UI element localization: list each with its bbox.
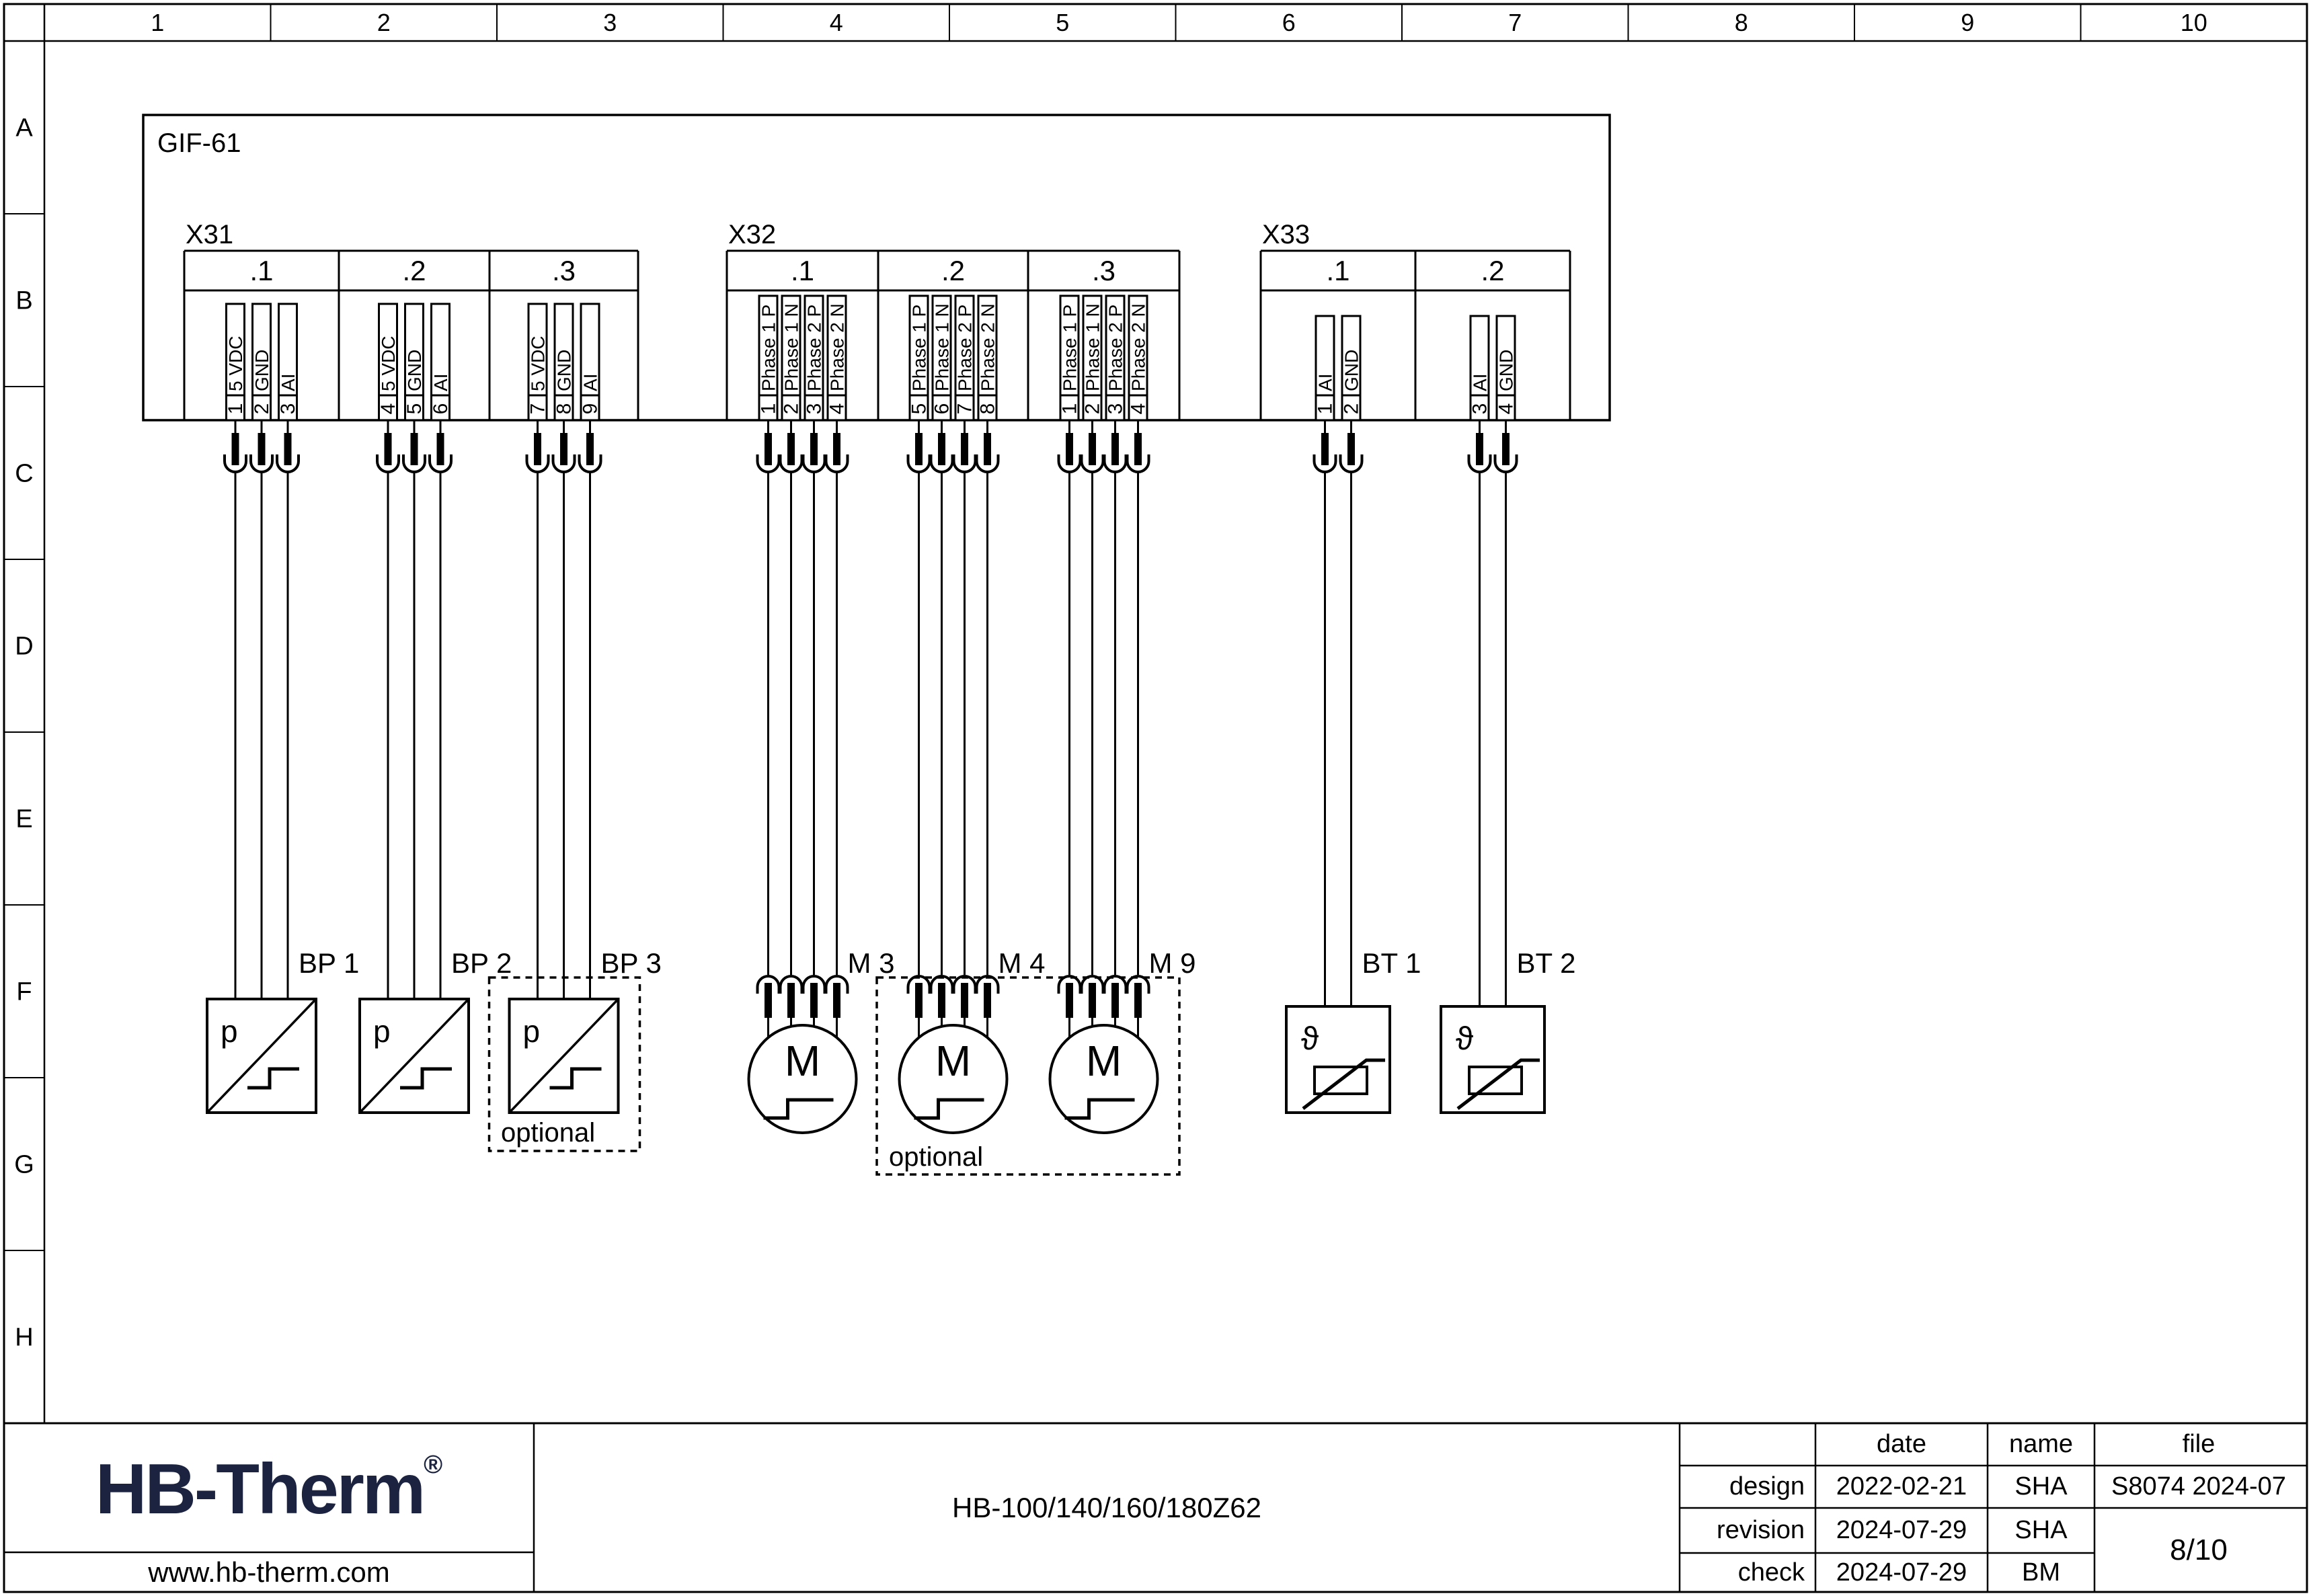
- plug-pin-icon: [915, 433, 923, 465]
- plug-pin-icon: [1134, 983, 1142, 1018]
- plug-pin-icon: [810, 433, 818, 465]
- pin-number: 5: [403, 403, 426, 415]
- plug-pin-icon: [810, 983, 818, 1018]
- plug-pin-icon: [1111, 983, 1119, 1018]
- plug-pin-icon: [385, 433, 392, 465]
- plug-pin-icon: [765, 983, 772, 1018]
- pin-label: Phase 2 P: [1105, 305, 1126, 391]
- ruler-row-label: G: [14, 1151, 34, 1179]
- motor-symbol: M: [1086, 1037, 1122, 1085]
- plug-pin-icon: [1111, 433, 1119, 465]
- pin-label: AI: [1470, 374, 1491, 391]
- registered-trademark-icon: ®: [424, 1451, 442, 1480]
- section-label: .3: [552, 255, 576, 286]
- pin-number: 4: [1128, 403, 1150, 415]
- titleblock-header-file: file: [2094, 1423, 2303, 1466]
- pin-label: AI: [278, 374, 299, 391]
- device-label: BP 3: [601, 947, 662, 979]
- pin-number: 1: [1059, 403, 1081, 415]
- pin-number: 3: [277, 403, 299, 415]
- pin-label: Phase 2 N: [978, 303, 998, 391]
- plug-pin-icon: [258, 433, 266, 465]
- device-label: M 9: [1149, 947, 1196, 979]
- design-name: SHA: [1988, 1466, 2094, 1508]
- website-link[interactable]: www.hb-therm.com: [4, 1552, 534, 1592]
- section-label: .1: [1326, 255, 1349, 286]
- pin-number: 4: [377, 403, 399, 415]
- pin-number: 7: [954, 403, 976, 415]
- design-date: 2022-02-21: [1815, 1466, 1988, 1508]
- section-label: .2: [941, 255, 965, 286]
- ruler-column-label: 8: [1735, 9, 1748, 36]
- ruler-row-label: D: [15, 633, 33, 661]
- pin-label: Phase 1 N: [932, 303, 953, 391]
- pin-label: AI: [580, 374, 601, 391]
- check-date: 2024-07-29: [1815, 1553, 1988, 1592]
- device-label: BP 1: [299, 947, 359, 979]
- ruler-row-label: F: [16, 978, 32, 1006]
- check-name: BM: [1988, 1553, 2094, 1592]
- schematic-drawing: 12345678910ABCDEFGHGIF-61X31.15 VDC1GND2…: [0, 0, 2311, 1596]
- design-label: design: [1684, 1466, 1815, 1508]
- device-label: M 4: [998, 947, 1046, 979]
- plug-pin-icon: [560, 433, 567, 465]
- pin-number: 8: [977, 403, 999, 415]
- ruler-column-label: 10: [2181, 9, 2207, 36]
- pin-label: 5 VDC: [378, 336, 399, 391]
- plug-pin-icon: [984, 983, 991, 1018]
- plug-pin-icon: [1089, 433, 1096, 465]
- plug-pin-icon: [833, 983, 840, 1018]
- plug-pin-icon: [586, 433, 594, 465]
- plug-pin-icon: [915, 983, 923, 1018]
- ruler-row-label: H: [15, 1324, 33, 1352]
- pin-label: Phase 1 P: [1060, 305, 1081, 391]
- ruler-row-label: B: [15, 287, 32, 315]
- ruler-column-label: 1: [151, 9, 164, 36]
- pin-label: Phase 1 N: [781, 303, 802, 391]
- pin-label: GND: [554, 350, 575, 391]
- plug-pin-icon: [1347, 433, 1355, 465]
- plug-pin-icon: [1134, 433, 1142, 465]
- company-logo: HB-Therm®: [4, 1426, 534, 1552]
- revision-label: revision: [1684, 1508, 1815, 1553]
- pin-number: 4: [826, 403, 849, 415]
- pin-number: 2: [251, 403, 273, 415]
- revision-name: SHA: [1988, 1508, 2094, 1553]
- pin-label: 5 VDC: [528, 336, 549, 391]
- ruler-column-label: 7: [1508, 9, 1522, 36]
- pin-number: 9: [580, 403, 602, 415]
- pin-label: Phase 2 N: [827, 303, 848, 391]
- plug-pin-icon: [1089, 983, 1096, 1018]
- ruler-column-label: 5: [1056, 9, 1069, 36]
- pin-label: AI: [430, 374, 451, 391]
- plug-pin-icon: [1321, 433, 1329, 465]
- section-label: .2: [402, 255, 426, 286]
- pin-number: 8: [553, 403, 576, 415]
- ruler-column-label: 9: [1961, 9, 1974, 36]
- connector-id: X31: [186, 220, 233, 249]
- pin-label: Phase 1 P: [758, 305, 779, 391]
- plug-pin-icon: [411, 433, 418, 465]
- section-label: .1: [249, 255, 273, 286]
- plug-pin-icon: [437, 433, 444, 465]
- section-label: .2: [1481, 255, 1504, 286]
- connector-id: X33: [1262, 220, 1310, 249]
- page-border: [4, 4, 2307, 1592]
- pin-label: Phase 2 P: [804, 305, 825, 391]
- plug-pin-icon: [765, 433, 772, 465]
- ruler-row-label: C: [15, 460, 33, 488]
- optional-label: optional: [501, 1118, 595, 1148]
- plug-pin-icon: [787, 433, 795, 465]
- pin-number: 3: [804, 403, 826, 415]
- pressure-symbol: p: [221, 1014, 238, 1049]
- pin-label: Phase 1 P: [909, 305, 930, 391]
- temperature-symbol: ϑ: [1301, 1021, 1319, 1057]
- pin-number: 2: [1341, 403, 1363, 415]
- pin-label: GND: [1341, 350, 1362, 391]
- pin-label: GND: [404, 350, 425, 391]
- temperature-symbol: ϑ: [1456, 1021, 1473, 1057]
- plug-pin-icon: [938, 983, 945, 1018]
- device-label: BT 1: [1362, 947, 1421, 979]
- check-label: check: [1684, 1553, 1815, 1592]
- section-label: .3: [1092, 255, 1115, 286]
- ruler-column-label: 2: [377, 9, 391, 36]
- ruler-row-label: A: [15, 114, 33, 143]
- pin-number: 1: [1315, 403, 1337, 415]
- schematic-sheet: 12345678910ABCDEFGHGIF-61X31.15 VDC1GND2…: [0, 0, 2311, 1596]
- pin-label: GND: [1496, 350, 1517, 391]
- plug-pin-icon: [1476, 433, 1483, 465]
- pin-number: 2: [781, 403, 803, 415]
- pin-number: 1: [225, 403, 247, 415]
- device-label: M 3: [848, 947, 895, 979]
- pin-label: Phase 2 P: [955, 305, 976, 391]
- optional-label: optional: [889, 1142, 983, 1172]
- pin-number: 1: [758, 403, 780, 415]
- pin-label: GND: [251, 350, 272, 391]
- pressure-symbol: p: [523, 1014, 541, 1049]
- pin-number: 7: [527, 403, 549, 415]
- ruler-column-label: 4: [830, 9, 843, 36]
- pin-number: 3: [1469, 403, 1491, 415]
- pin-number: 2: [1082, 403, 1104, 415]
- pressure-symbol: p: [373, 1014, 391, 1049]
- titleblock-header-name: name: [1988, 1423, 2094, 1466]
- section-label: .1: [791, 255, 814, 286]
- titleblock-header-date: date: [1815, 1423, 1988, 1466]
- motor-symbol: M: [785, 1037, 820, 1085]
- pin-number: 4: [1495, 403, 1518, 415]
- pin-number: 3: [1105, 403, 1127, 415]
- page-number: 8/10: [2094, 1508, 2303, 1592]
- connector-id: X32: [728, 220, 776, 249]
- plug-pin-icon: [232, 433, 239, 465]
- pin-number: 5: [908, 403, 931, 415]
- plug-pin-icon: [1066, 433, 1073, 465]
- plug-pin-icon: [534, 433, 541, 465]
- ruler-column-label: 6: [1282, 9, 1296, 36]
- pin-label: Phase 2 N: [1128, 303, 1149, 391]
- plug-pin-icon: [961, 983, 968, 1018]
- ruler-row-label: E: [15, 805, 32, 834]
- device-label: BT 2: [1517, 947, 1576, 979]
- plug-pin-icon: [961, 433, 968, 465]
- pin-label: Phase 1 N: [1083, 303, 1103, 391]
- ruler-column-label: 3: [603, 9, 617, 36]
- plug-pin-icon: [787, 983, 795, 1018]
- pin-label: 5 VDC: [225, 336, 246, 391]
- gif-61-label: GIF-61: [157, 128, 241, 158]
- plug-pin-icon: [984, 433, 991, 465]
- plug-pin-icon: [833, 433, 840, 465]
- plug-pin-icon: [938, 433, 945, 465]
- plug-pin-icon: [1066, 983, 1073, 1018]
- pin-number: 6: [430, 403, 452, 415]
- revision-date: 2024-07-29: [1815, 1508, 1988, 1553]
- document-title: HB-100/140/160/180Z62: [534, 1423, 1680, 1592]
- device-label: BP 2: [451, 947, 512, 979]
- motor-symbol: M: [935, 1037, 971, 1085]
- file-value: S8074 2024-07: [2094, 1466, 2303, 1508]
- gif-61-box: [143, 115, 1610, 420]
- pin-number: 6: [931, 403, 953, 415]
- plug-pin-icon: [284, 433, 292, 465]
- pin-label: AI: [1315, 374, 1336, 391]
- logo-text: HB-Therm: [95, 1449, 424, 1530]
- plug-pin-icon: [1502, 433, 1510, 465]
